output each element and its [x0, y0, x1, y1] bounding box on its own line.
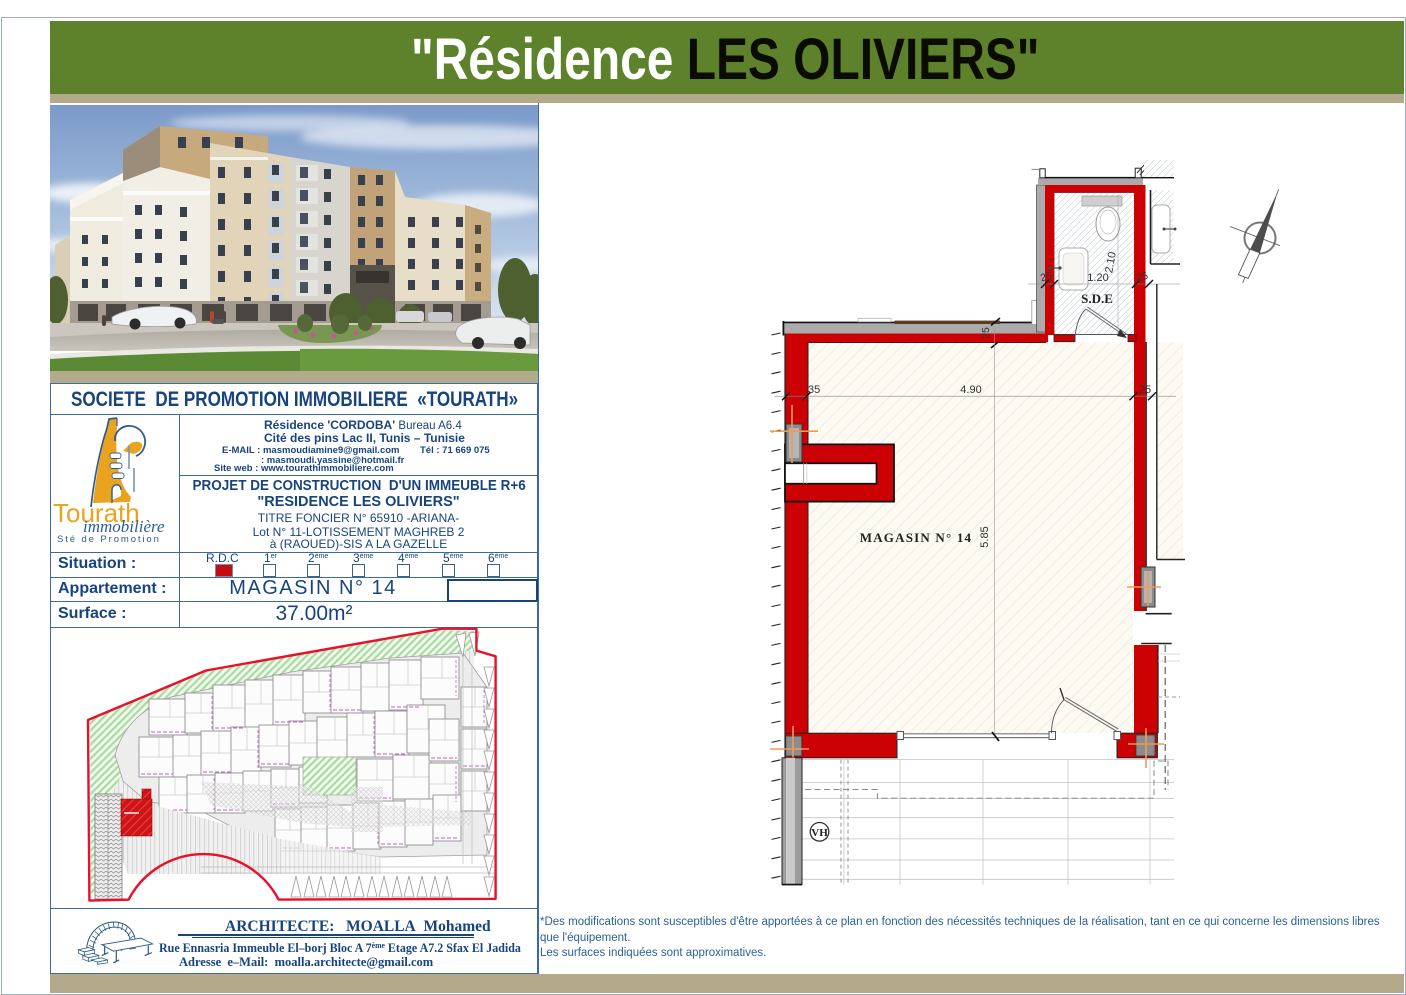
svg-text:25: 25 [1139, 384, 1151, 396]
svg-text:35: 35 [808, 384, 820, 396]
svg-text:5.85: 5.85 [979, 526, 991, 547]
svg-text:25: 25 [980, 327, 992, 339]
svg-text:4.90: 4.90 [960, 384, 981, 396]
svg-text:Sté de Promotion: Sté de Promotion [57, 534, 161, 545]
svg-text:25: 25 [1135, 270, 1150, 285]
svg-text:VH: VH [811, 827, 828, 839]
svg-text:MAGASIN N° 14: MAGASIN N° 14 [860, 530, 973, 545]
svg-text:1.20: 1.20 [1087, 272, 1108, 284]
svg-text:S.D.E: S.D.E [1081, 291, 1113, 306]
